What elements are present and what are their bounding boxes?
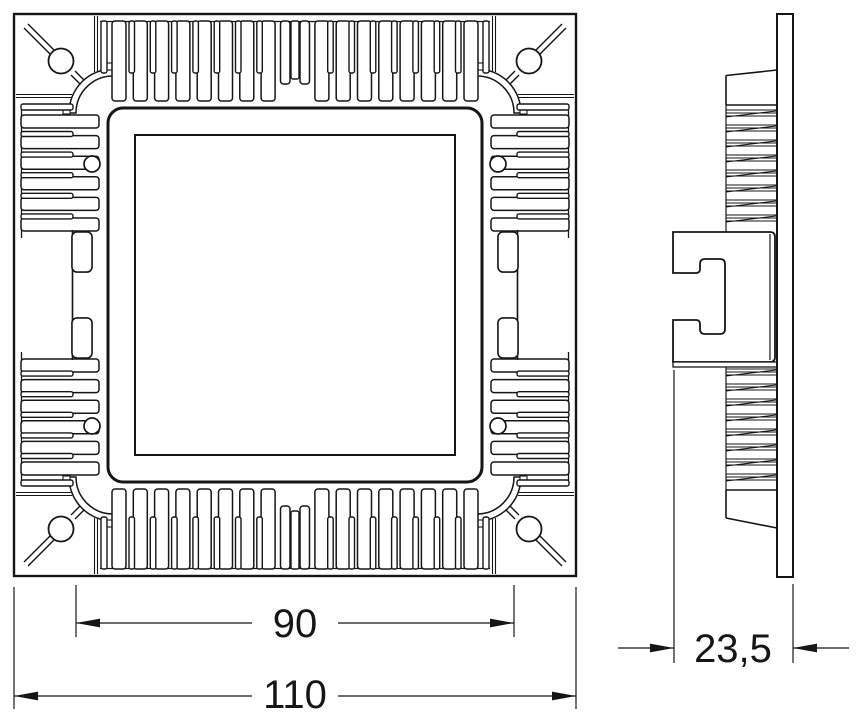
mounting-clip-block [673,232,775,362]
arrow-right [490,619,514,628]
arrow-right [552,692,576,701]
light-aperture [135,135,455,455]
clip-flange [673,362,777,367]
technical-drawing-canvas: 90 110 23,5 [0,0,858,720]
dimension-inner-width: 90 [76,585,514,646]
arrow-left [650,644,674,653]
arrow-left [14,692,38,701]
dim-label-23-5: 23,5 [694,627,772,671]
corner-screw-boss [49,49,74,74]
arrow-left [76,619,100,628]
dimension-depth: 23,5 [618,370,849,671]
side-bezel-plate [777,14,793,577]
front-view [14,14,576,576]
drawing-page: 90 110 23,5 [0,0,858,720]
dim-label-90: 90 [273,602,318,646]
dim-label-110: 110 [263,673,327,717]
arrow-right [793,644,817,653]
side-view [673,14,793,577]
